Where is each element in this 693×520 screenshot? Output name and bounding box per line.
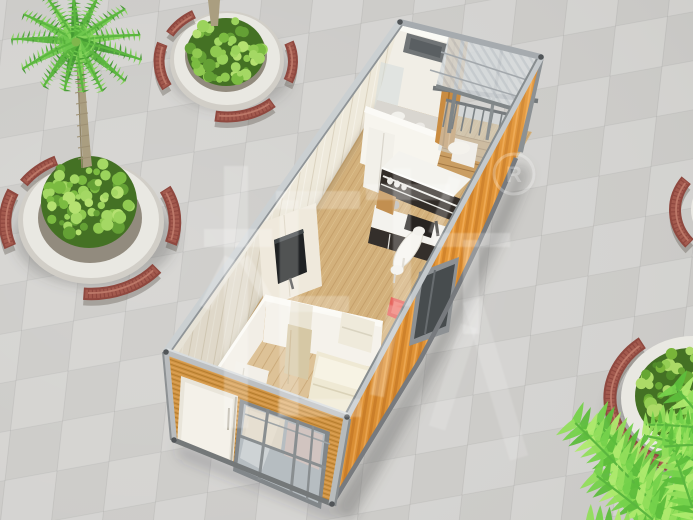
svg-text:R: R [506,162,522,187]
